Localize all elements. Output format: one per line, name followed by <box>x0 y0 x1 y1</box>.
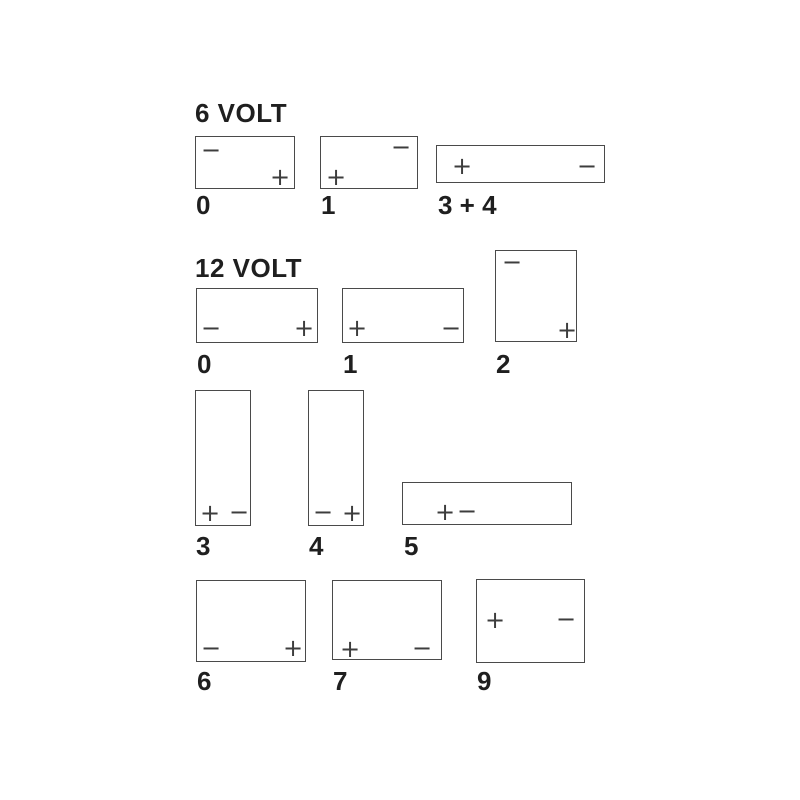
battery-outline: +− <box>402 482 572 525</box>
negative-terminal-icon: − <box>556 607 576 631</box>
negative-terminal-icon: − <box>201 316 221 340</box>
battery-label: 5 <box>404 533 418 559</box>
positive-terminal-icon: + <box>452 154 472 178</box>
positive-terminal-icon: + <box>294 316 314 340</box>
battery-outline: +− <box>332 580 442 660</box>
battery-outline: +− <box>342 288 464 343</box>
battery-terminal-layout-diagram: 6 VOLT 12 VOLT −+0−+1+−3 + 4−+0+−1−+2+−3… <box>0 0 800 800</box>
negative-terminal-icon: − <box>229 500 249 524</box>
positive-terminal-icon: + <box>200 501 220 525</box>
battery-outline: −+ <box>308 390 364 526</box>
negative-terminal-icon: − <box>201 636 221 660</box>
battery-label: 0 <box>197 351 211 377</box>
battery-outline: +− <box>195 390 251 526</box>
positive-terminal-icon: + <box>270 165 290 189</box>
positive-terminal-icon: + <box>347 316 367 340</box>
section-heading-12-volt: 12 VOLT <box>195 255 302 281</box>
positive-terminal-icon: + <box>326 165 346 189</box>
positive-terminal-icon: + <box>283 636 303 660</box>
positive-terminal-icon: + <box>342 501 362 525</box>
negative-terminal-icon: − <box>457 499 477 523</box>
negative-terminal-icon: − <box>201 138 221 162</box>
battery-label: 0 <box>196 192 210 218</box>
negative-terminal-icon: − <box>313 500 333 524</box>
battery-label: 3 + 4 <box>438 192 497 218</box>
battery-outline: −+ <box>195 136 295 189</box>
positive-terminal-icon: + <box>557 318 577 342</box>
battery-label: 3 <box>196 533 210 559</box>
battery-outline: +− <box>476 579 585 663</box>
battery-outline: −+ <box>196 580 306 662</box>
negative-terminal-icon: − <box>412 636 432 660</box>
negative-terminal-icon: − <box>391 135 411 159</box>
battery-label: 2 <box>496 351 510 377</box>
battery-outline: −+ <box>495 250 577 342</box>
positive-terminal-icon: + <box>485 608 505 632</box>
battery-label: 6 <box>197 668 211 694</box>
section-heading-6-volt: 6 VOLT <box>195 100 287 126</box>
battery-outline: −+ <box>196 288 318 343</box>
negative-terminal-icon: − <box>502 250 522 274</box>
battery-label: 4 <box>309 533 323 559</box>
negative-terminal-icon: − <box>577 154 597 178</box>
positive-terminal-icon: + <box>435 500 455 524</box>
negative-terminal-icon: − <box>441 316 461 340</box>
battery-label: 9 <box>477 668 491 694</box>
battery-label: 1 <box>343 351 357 377</box>
battery-label: 7 <box>333 668 347 694</box>
battery-outline: −+ <box>320 136 418 189</box>
positive-terminal-icon: + <box>340 637 360 661</box>
battery-label: 1 <box>321 192 335 218</box>
battery-outline: +− <box>436 145 605 183</box>
